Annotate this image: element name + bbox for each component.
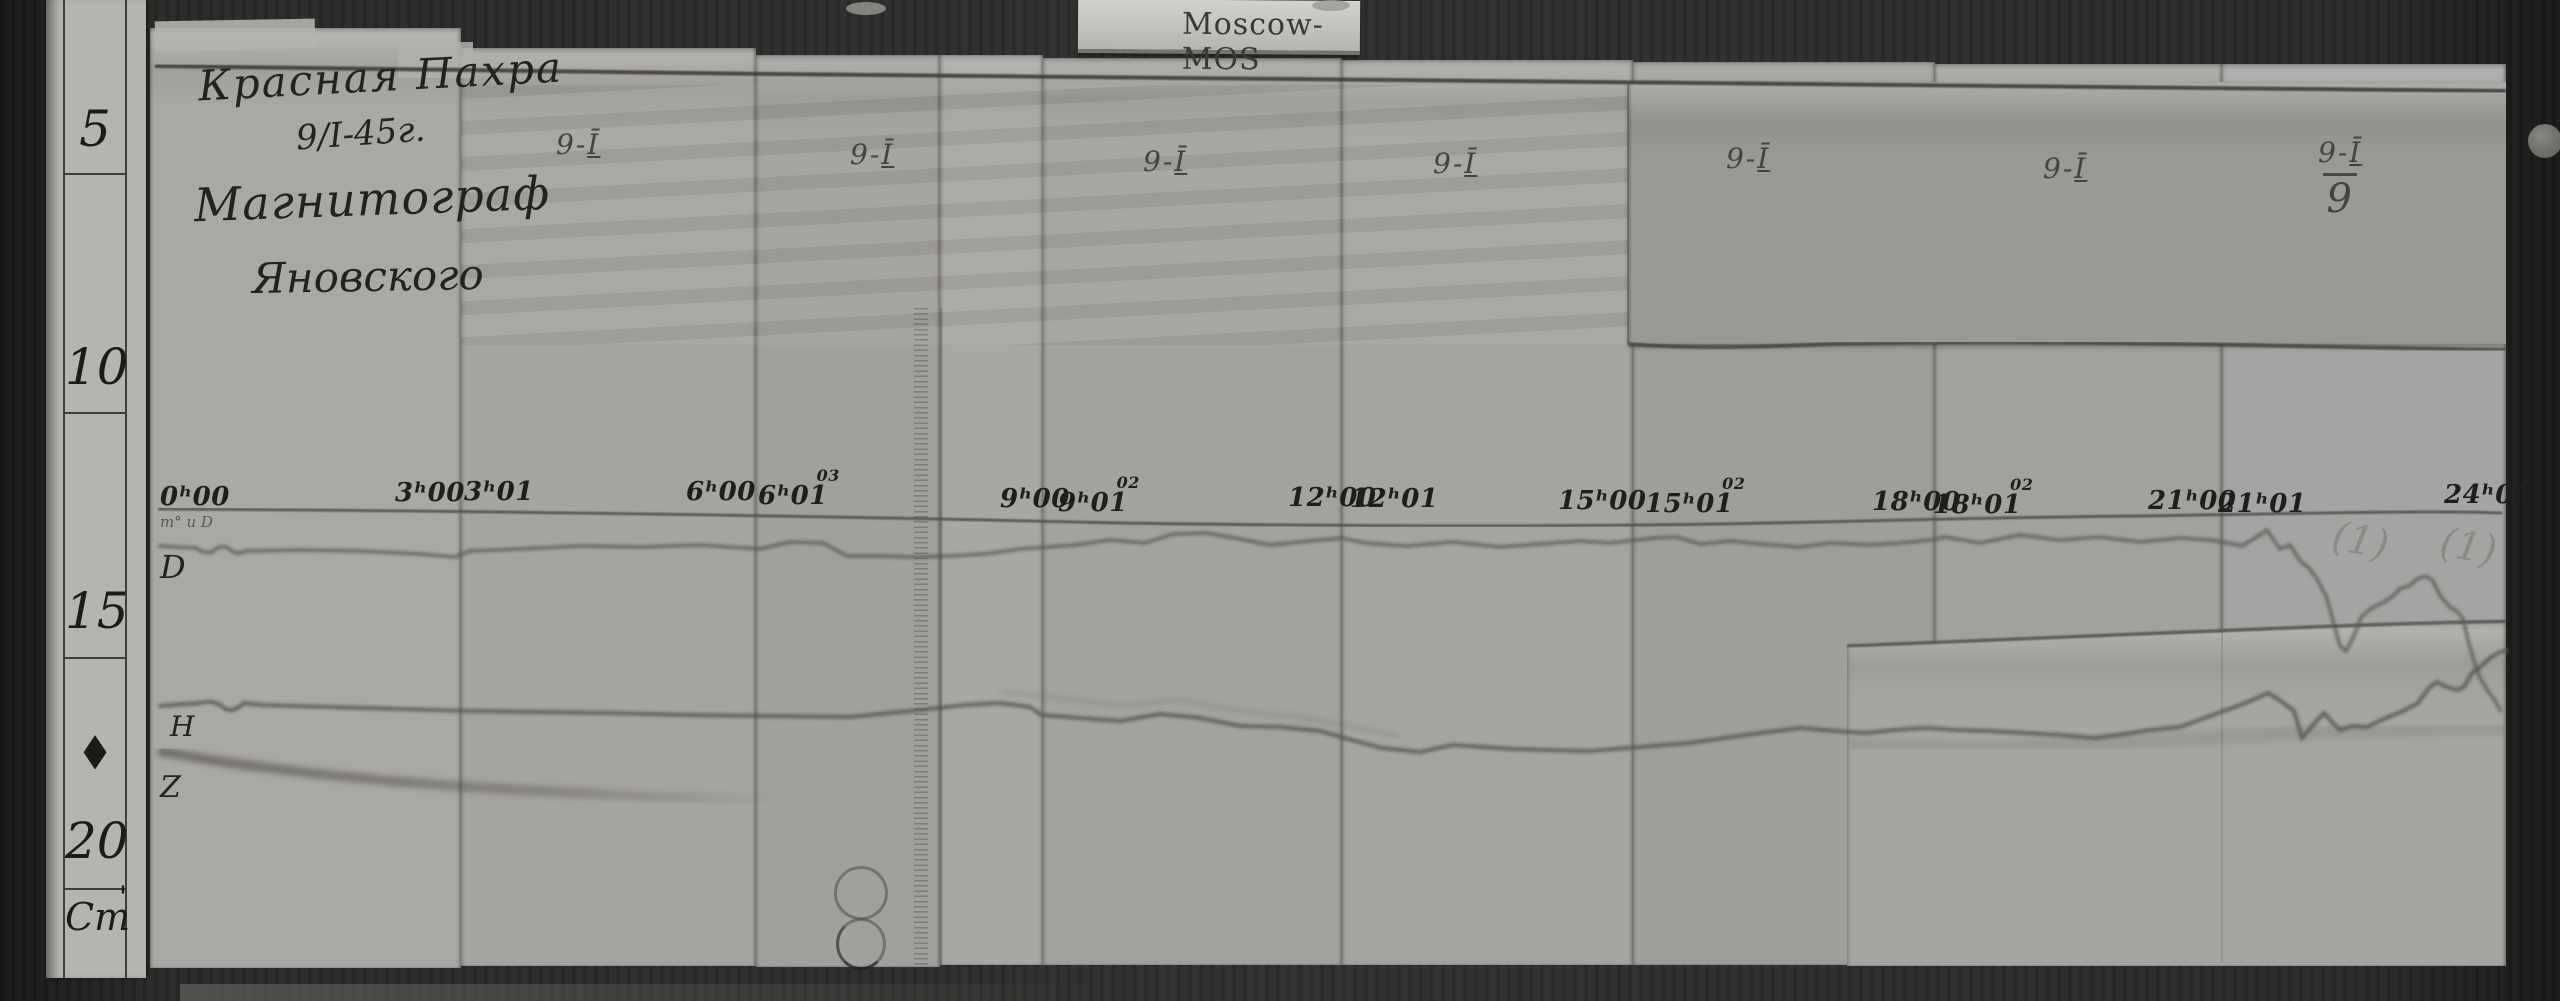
time-label: 6ʰ00 — [686, 477, 756, 507]
sheet-header: 9-Ī — [1726, 142, 1770, 175]
sheet-header: 9-Ī — [1143, 145, 1187, 178]
time-label: 24ʰ00 — [2444, 480, 2532, 510]
archive-label-text: Moscow-MOS — [1078, 0, 1361, 78]
ruler-unit-tick: ' — [93, 880, 153, 915]
h-component-label: H — [170, 710, 194, 743]
ruler-diamond: ◆ — [65, 723, 125, 776]
pencil-mark: (1) — [2328, 513, 2392, 568]
horizontal-intensity-trace-faint — [1000, 691, 1400, 737]
sheet-header-with-number: 9-Ī 9 — [2318, 136, 2362, 222]
centimeter-ruler: 5 10 15 20 ◆ Cm ' — [46, 0, 146, 978]
knob-highlight — [2528, 124, 2560, 158]
clip-highlight — [846, 2, 886, 15]
time-label: 3ʰ00 — [395, 478, 465, 508]
pencil-mark: (1) — [2436, 519, 2500, 574]
time-label: 0218ʰ01 — [1933, 490, 2021, 520]
sheet-header: 9-Ī — [1433, 147, 1477, 180]
sheet-header: 9-Ī — [850, 138, 894, 171]
sheet-header: 9-Ī — [556, 128, 600, 161]
sheet-number: 9 — [2318, 176, 2362, 222]
time-label: 036ʰ01 — [758, 481, 828, 511]
declination-trace — [158, 530, 2501, 712]
table-edge-band — [180, 984, 1100, 1001]
time-label: 029ʰ01 — [1058, 488, 1128, 518]
ruler-mark-20: 20 — [65, 812, 125, 870]
ruler-mark-5: 5 — [65, 100, 125, 158]
baseline-note: т° и D — [160, 513, 213, 531]
overlay-top-right-bottom-edge — [1628, 343, 2506, 350]
overlay-bottom-right-top-edge — [1847, 621, 2506, 646]
time-label: 15ʰ00 — [1558, 486, 1646, 516]
time-label: 0ʰ00 — [160, 482, 230, 512]
time-label: 21ʰ01 — [2218, 489, 2306, 519]
declination-label: D — [160, 548, 186, 586]
ruler-mark-10: 10 — [65, 338, 125, 396]
magnetogram-photo: Красная Пахра 9/I-45г. Магнитограф Яновс… — [0, 0, 2560, 1001]
time-label: 0215ʰ01 — [1645, 489, 1733, 519]
z-component-label: Z — [160, 770, 181, 805]
ruler-tick — [65, 412, 125, 414]
clip-highlight — [1312, 0, 1350, 11]
vertical-intensity-trace — [158, 751, 770, 801]
instrument-maker: Яновского — [252, 250, 485, 303]
time-label: 12ʰ01 — [1350, 484, 1438, 514]
sheet-header: 9-Ī — [2043, 152, 2087, 185]
time-label: 3ʰ01 — [464, 477, 534, 507]
ruler-mark-15: 15 — [65, 582, 125, 640]
ruler-tick — [65, 657, 125, 659]
ruler-column: 5 10 15 20 ◆ Cm ' — [63, 0, 127, 978]
ruler-tick — [65, 173, 125, 175]
